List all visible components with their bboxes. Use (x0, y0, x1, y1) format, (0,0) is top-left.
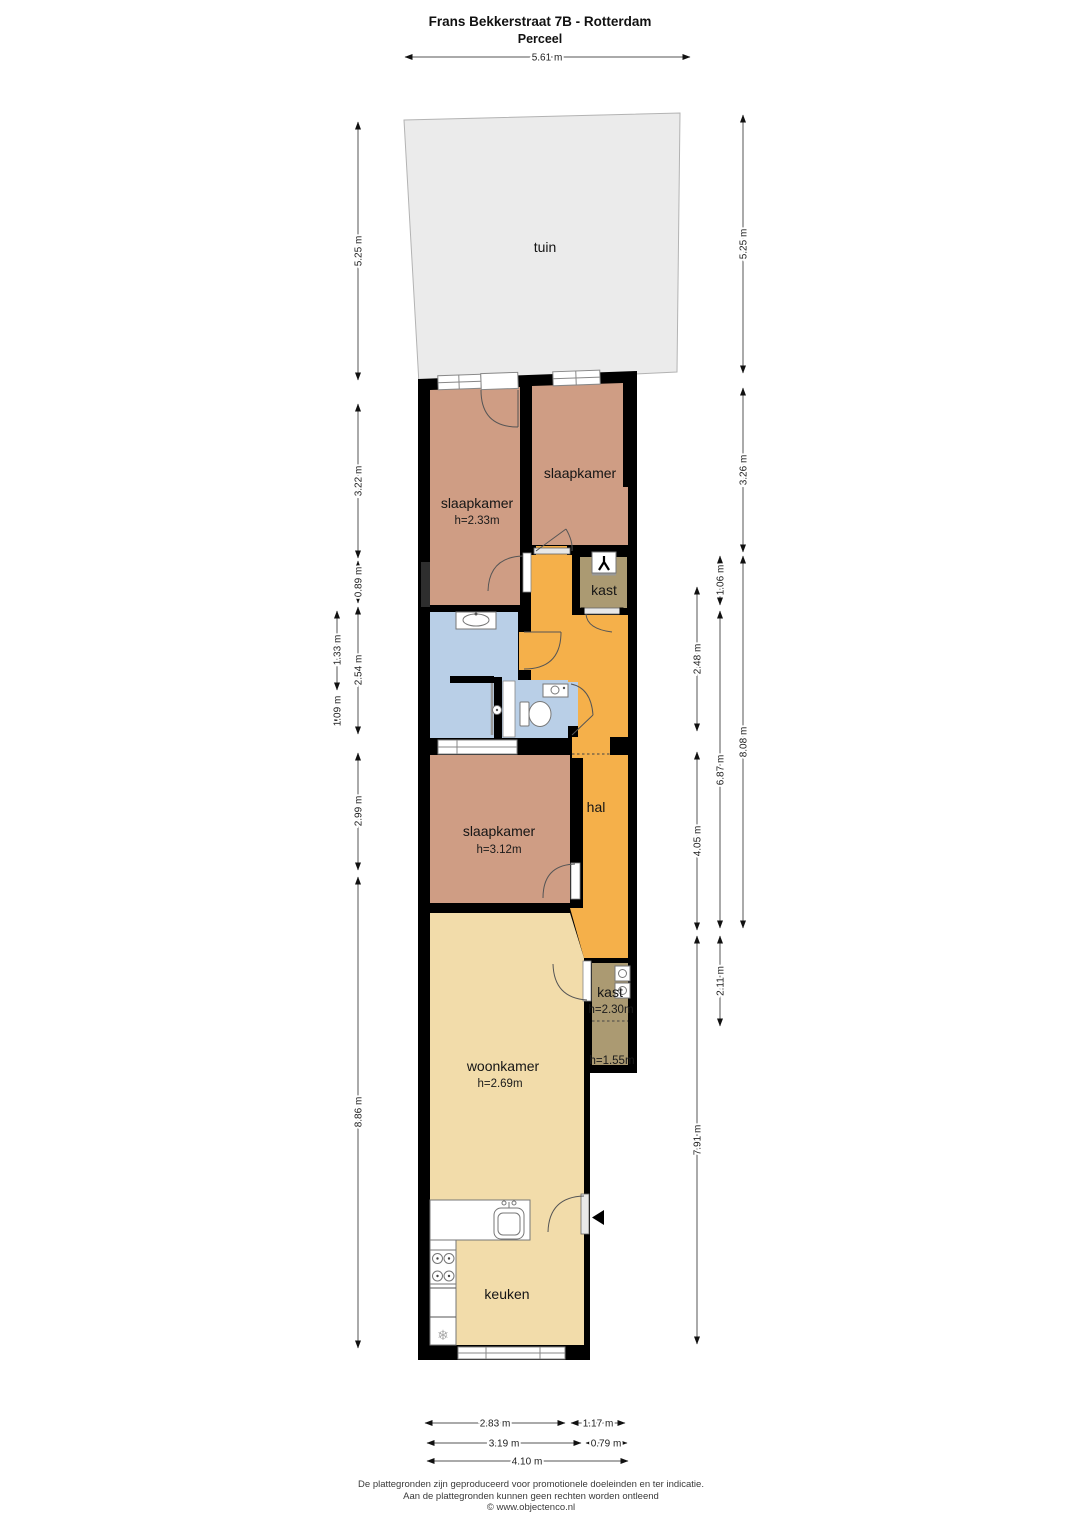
dim-left-8-86: 8.86 m (354, 877, 365, 1348)
footer-line-3: © www.objectenco.nl (487, 1502, 575, 1513)
svg-text:1.06 m: 1.06 m (716, 565, 727, 596)
dim-left-2-54: 2.54 m (354, 607, 365, 734)
svg-text:1.09 m: 1.09 m (333, 696, 344, 727)
wall-shower-stub (450, 676, 494, 683)
window-top-right (553, 370, 600, 386)
svg-text:5.25 m: 5.25 m (739, 229, 750, 260)
wc-door-leaf (503, 681, 515, 737)
dim-bottom-1-17: 1.17 m (571, 1419, 625, 1430)
svg-text:2.99 m: 2.99 m (354, 796, 365, 827)
svg-text:2.83 m: 2.83 m (480, 1419, 511, 1430)
room-label-slaapkamer-3: slaapkamer (463, 823, 536, 839)
room-label-kast-1: kast (591, 582, 617, 598)
room-label-tuin: tuin (534, 239, 557, 255)
dim-left-1-09: 1.09 m (333, 696, 344, 727)
garden-door (481, 372, 519, 389)
svg-text:3.19 m: 3.19 m (489, 1439, 520, 1450)
room-label-woonkamer: woonkamer (466, 1058, 540, 1074)
hall-passage (572, 737, 610, 758)
dim-right-8-08: 8.08 m (739, 556, 750, 928)
wc-sink-icon (543, 684, 568, 697)
dim-right-7-91: 7.91 m (693, 936, 704, 1344)
svg-text:6.87 m: 6.87 m (716, 755, 727, 786)
svg-text:0.89 m: 0.89 m (354, 567, 365, 598)
dim-left-2-99: 2.99 m (354, 753, 365, 870)
dim-bottom-2-83: 2.83 m (425, 1419, 565, 1430)
dim-left-3-22: 3.22 m (354, 404, 365, 558)
window-kitchen (458, 1347, 565, 1359)
room-label-kast-2: kast (597, 984, 623, 1000)
page-title: Frans Bekkerstraat 7B - Rotterdam (429, 14, 652, 29)
dim-right-2-11: 2.11 m (716, 936, 727, 1026)
room-label-hal: hal (587, 799, 606, 815)
hall-vestibule (531, 555, 572, 615)
wall-shaft (421, 562, 430, 607)
svg-text:0.79 m: 0.79 m (591, 1439, 622, 1450)
dim-tuin-right: 5.25 m (739, 115, 750, 373)
hall-lower (583, 755, 628, 910)
toilet-icon (520, 702, 551, 727)
dim-tuin-left: 5.25 m (354, 122, 365, 380)
svg-text:8.86 m: 8.86 m (354, 1097, 365, 1128)
dim-bottom-3-19: 3.19 m (427, 1439, 581, 1450)
svg-text:3.26 m: 3.26 m (739, 455, 750, 486)
dim-right-2-48: 2.48 m (693, 587, 704, 731)
dim-right-1-06: 1.06 m (716, 556, 727, 605)
svg-text:2.48 m: 2.48 m (693, 644, 704, 675)
dim-right-4-05: 4.05 m (693, 752, 704, 930)
svg-text:8.08 m: 8.08 m (739, 727, 750, 758)
svg-text:2.54 m: 2.54 m (354, 655, 365, 686)
svg-text:3.22 m: 3.22 m (354, 466, 365, 497)
svg-text:5.61 m: 5.61 m (532, 53, 563, 64)
window-interior (438, 740, 517, 754)
room-label-keuken: keuken (484, 1286, 529, 1302)
dim-bottom-0-79: 0.79 m (586, 1439, 627, 1450)
dim-bottom-4-10: 4.10 m (427, 1457, 628, 1468)
height-label-kast-2-back: h=1.55m (589, 1055, 634, 1067)
height-label-slaapkamer-1: h=2.33m (454, 515, 499, 527)
window-top-left (438, 374, 481, 389)
snowflake-icon: ❄ (437, 1327, 449, 1343)
svg-text:5.25 m: 5.25 m (354, 236, 365, 267)
svg-text:1.33 m: 1.33 m (333, 635, 344, 666)
room-slaapkamer-2 (532, 383, 628, 545)
height-label-slaapkamer-3: h=3.12m (476, 844, 521, 856)
dim-left-1-33: 1.33 m (333, 611, 344, 690)
svg-text:4.10 m: 4.10 m (512, 1457, 543, 1468)
dim-left-0-89: 0.89 m (354, 561, 365, 603)
entrance-arrow-icon (592, 1210, 604, 1225)
svg-text:7.91 m: 7.91 m (693, 1125, 704, 1156)
page-subtitle: Perceel (518, 32, 562, 46)
svg-text:4.05 m: 4.05 m (693, 826, 704, 857)
svg-text:2.11 m: 2.11 m (716, 966, 727, 996)
kast1-threshold (581, 608, 624, 615)
opening-wc (568, 682, 578, 726)
hall-mid (531, 615, 628, 682)
floorplan-canvas: Frans Bekkerstraat 7B - Rotterdam Percee… (0, 0, 1080, 1527)
height-label-woonkamer: h=2.69m (477, 1078, 522, 1090)
floorplan-page: Frans Bekkerstraat 7B - Rotterdam Percee… (0, 0, 1080, 1527)
room-label-slaapkamer-1: slaapkamer (441, 495, 514, 511)
dim-right-6-87: 6.87 m (716, 611, 727, 928)
bathroom-sink-icon (456, 612, 496, 629)
dim-right-3-26: 3.26 m (739, 388, 750, 552)
svg-text:1.17 m: 1.17 m (583, 1419, 614, 1430)
room-label-slaapkamer-2: slaapkamer (544, 465, 617, 481)
height-label-kast-2-front: h=2.30m (588, 1004, 633, 1016)
dim-top-width: 5.61 m (405, 53, 690, 64)
footer-line-1: De plattegronden zijn geproduceerd voor … (358, 1479, 704, 1490)
hall-beside-wc (578, 680, 628, 737)
footer-line-2: Aan de plattegronden kunnen geen rechten… (403, 1491, 659, 1502)
opening-badkamer (519, 632, 531, 670)
ventilation-icon (592, 552, 616, 575)
